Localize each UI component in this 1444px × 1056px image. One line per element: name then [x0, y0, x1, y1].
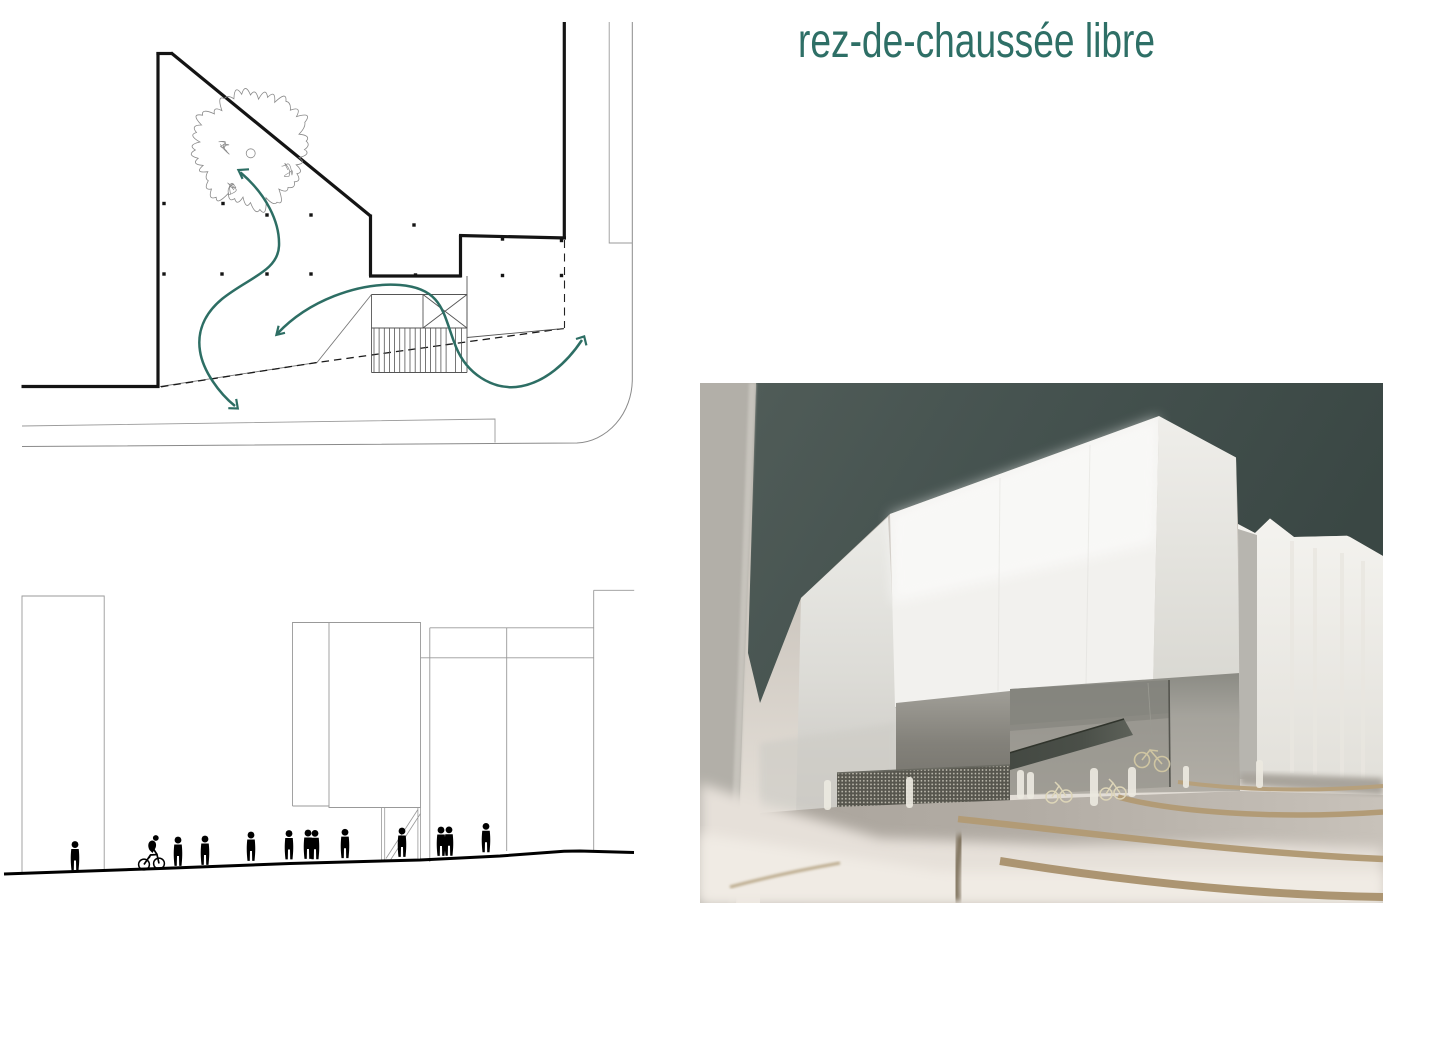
svg-text:rez-de-chaussée libre: rez-de-chaussée libre [798, 14, 1155, 68]
